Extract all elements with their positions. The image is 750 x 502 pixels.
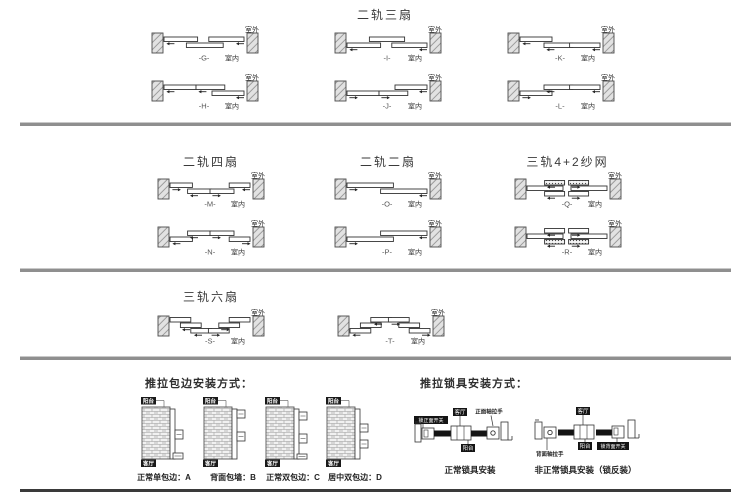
svg-text:客厅: 客厅 bbox=[266, 460, 279, 468]
wrap-variant-label-a: 正常单包边：A bbox=[124, 472, 204, 483]
slide-diagram-M: 室外-M-室内 bbox=[155, 170, 267, 210]
lock-install-header: 推拉锁具安装方式： bbox=[420, 375, 528, 391]
slide-diagram-R: 室外-R-室内 bbox=[512, 218, 624, 258]
svg-text:-K-: -K- bbox=[555, 54, 566, 63]
svg-text:室外: 室外 bbox=[601, 73, 615, 82]
svg-text:-L-: -L- bbox=[555, 102, 565, 111]
svg-text:客厅: 客厅 bbox=[142, 460, 155, 468]
svg-text:室外: 室外 bbox=[428, 171, 442, 180]
svg-text:阳台: 阳台 bbox=[267, 397, 279, 405]
svg-text:室内: 室内 bbox=[588, 248, 602, 257]
svg-text:-G-: -G- bbox=[199, 54, 210, 63]
slide-diagram-K: 室外-K-室内 bbox=[505, 24, 617, 64]
svg-text:阳台: 阳台 bbox=[579, 442, 591, 450]
divider-line bbox=[20, 122, 731, 126]
svg-text:室外: 室外 bbox=[251, 308, 265, 317]
svg-text:室外: 室外 bbox=[608, 219, 622, 228]
svg-text:室外: 室外 bbox=[428, 73, 442, 82]
lock-diagram-normal: 锁正面开关客厅阳台正面轴拉手 bbox=[413, 396, 533, 462]
svg-text:室内: 室内 bbox=[408, 102, 422, 111]
slide-diagram-I: 室外-I-室内 bbox=[332, 24, 444, 64]
svg-text:客厅: 客厅 bbox=[327, 460, 340, 468]
svg-text:室内: 室内 bbox=[408, 54, 422, 63]
svg-text:-H-: -H- bbox=[199, 102, 210, 111]
svg-text:室外: 室外 bbox=[428, 219, 442, 228]
lock-abnormal-label: 非正常锁具安装（锁反装） bbox=[508, 464, 663, 476]
divider-line bbox=[20, 489, 731, 492]
divider-line bbox=[20, 268, 731, 272]
slide-diagram-S: 室外-S-室内 bbox=[155, 307, 267, 347]
svg-text:锁正面开关: 锁正面开关 bbox=[418, 417, 443, 424]
section-title-three-track-4plus2-screen: 三轨4+2纱网 bbox=[500, 153, 635, 170]
slide-diagram-L: 室外-L-室内 bbox=[505, 72, 617, 112]
svg-text:客厅: 客厅 bbox=[454, 408, 466, 416]
svg-text:室内: 室内 bbox=[231, 200, 245, 209]
svg-text:阳台: 阳台 bbox=[328, 397, 340, 405]
svg-text:-S-: -S- bbox=[205, 337, 216, 346]
svg-text:室外: 室外 bbox=[601, 25, 615, 34]
svg-text:室外: 室外 bbox=[251, 171, 265, 180]
svg-text:室外: 室外 bbox=[608, 171, 622, 180]
section-title-two-track-three-panel: 二轨三扇 bbox=[320, 6, 450, 23]
svg-text:室外: 室外 bbox=[431, 308, 445, 317]
svg-text:客厅: 客厅 bbox=[204, 460, 217, 468]
slide-diagram-O: 室外-O-室内 bbox=[332, 170, 444, 210]
wrap-variant-label-d: 居中双包边：D bbox=[315, 472, 395, 483]
slide-diagram-H: 室外-H-室内 bbox=[149, 72, 261, 112]
svg-text:阳台: 阳台 bbox=[462, 444, 474, 452]
sliding-door-catalog-sheet: 二轨三扇 二轨四扇 二轨二扇 三轨4+2纱网 三轨六扇 室外-G-室内室外-H-… bbox=[0, 0, 750, 502]
svg-text:客厅: 客厅 bbox=[577, 407, 589, 415]
svg-text:背面轴拉手: 背面轴拉手 bbox=[536, 450, 564, 458]
svg-text:-O-: -O- bbox=[382, 200, 393, 209]
svg-text:室内: 室内 bbox=[225, 102, 239, 111]
wrap-install-header: 推拉包边安装方式： bbox=[145, 375, 253, 391]
svg-text:阳台: 阳台 bbox=[205, 397, 217, 405]
svg-text:-R-: -R- bbox=[562, 248, 573, 257]
svg-text:室内: 室内 bbox=[231, 248, 245, 257]
svg-text:室内: 室内 bbox=[231, 337, 245, 346]
svg-text:-Q-: -Q- bbox=[562, 200, 573, 209]
wrap-diagram-a: 阳台客厅 bbox=[140, 396, 190, 470]
wrap-diagram-d: 阳台客厅 bbox=[325, 396, 375, 470]
svg-text:阳台: 阳台 bbox=[143, 397, 155, 405]
svg-text:-J-: -J- bbox=[383, 102, 392, 111]
slide-diagram-N: 室外-N-室内 bbox=[155, 218, 267, 258]
slide-diagram-G: 室外-G-室内 bbox=[149, 24, 261, 64]
svg-text:室内: 室内 bbox=[408, 248, 422, 257]
svg-text:室内: 室内 bbox=[588, 200, 602, 209]
lock-diagram-abnormal: 背面轴拉手客厅阳台锁背面开关 bbox=[533, 396, 653, 462]
svg-text:锁背面开关: 锁背面开关 bbox=[600, 443, 625, 450]
wrap-diagram-c: 阳台客厅 bbox=[264, 396, 314, 470]
svg-text:室外: 室外 bbox=[245, 73, 259, 82]
svg-text:室外: 室外 bbox=[245, 25, 259, 34]
svg-text:-I-: -I- bbox=[383, 54, 391, 63]
svg-text:-M-: -M- bbox=[204, 200, 216, 209]
svg-text:室外: 室外 bbox=[251, 219, 265, 228]
slide-diagram-J: 室外-J-室内 bbox=[332, 72, 444, 112]
section-title-two-track-two-panel: 二轨二扇 bbox=[328, 153, 448, 170]
svg-text:室外: 室外 bbox=[428, 25, 442, 34]
svg-text:室内: 室内 bbox=[225, 54, 239, 63]
svg-text:-T-: -T- bbox=[385, 337, 395, 346]
section-title-three-track-six-panel: 三轨六扇 bbox=[151, 288, 271, 305]
svg-text:-P-: -P- bbox=[382, 248, 393, 257]
section-title-two-track-four-panel: 二轨四扇 bbox=[151, 153, 271, 170]
slide-diagram-T: 室外-T-室内 bbox=[335, 307, 447, 347]
svg-text:正面轴拉手: 正面轴拉手 bbox=[475, 408, 503, 416]
slide-diagram-Q: 室外-Q-室内 bbox=[512, 170, 624, 210]
svg-text:室内: 室内 bbox=[411, 337, 425, 346]
slide-diagram-P: 室外-P-室内 bbox=[332, 218, 444, 258]
svg-text:室内: 室内 bbox=[581, 54, 595, 63]
divider-line bbox=[20, 356, 731, 360]
wrap-diagram-b: 阳台客厅 bbox=[202, 396, 252, 470]
svg-text:-N-: -N- bbox=[205, 248, 216, 257]
svg-text:室内: 室内 bbox=[408, 200, 422, 209]
svg-text:室内: 室内 bbox=[581, 102, 595, 111]
